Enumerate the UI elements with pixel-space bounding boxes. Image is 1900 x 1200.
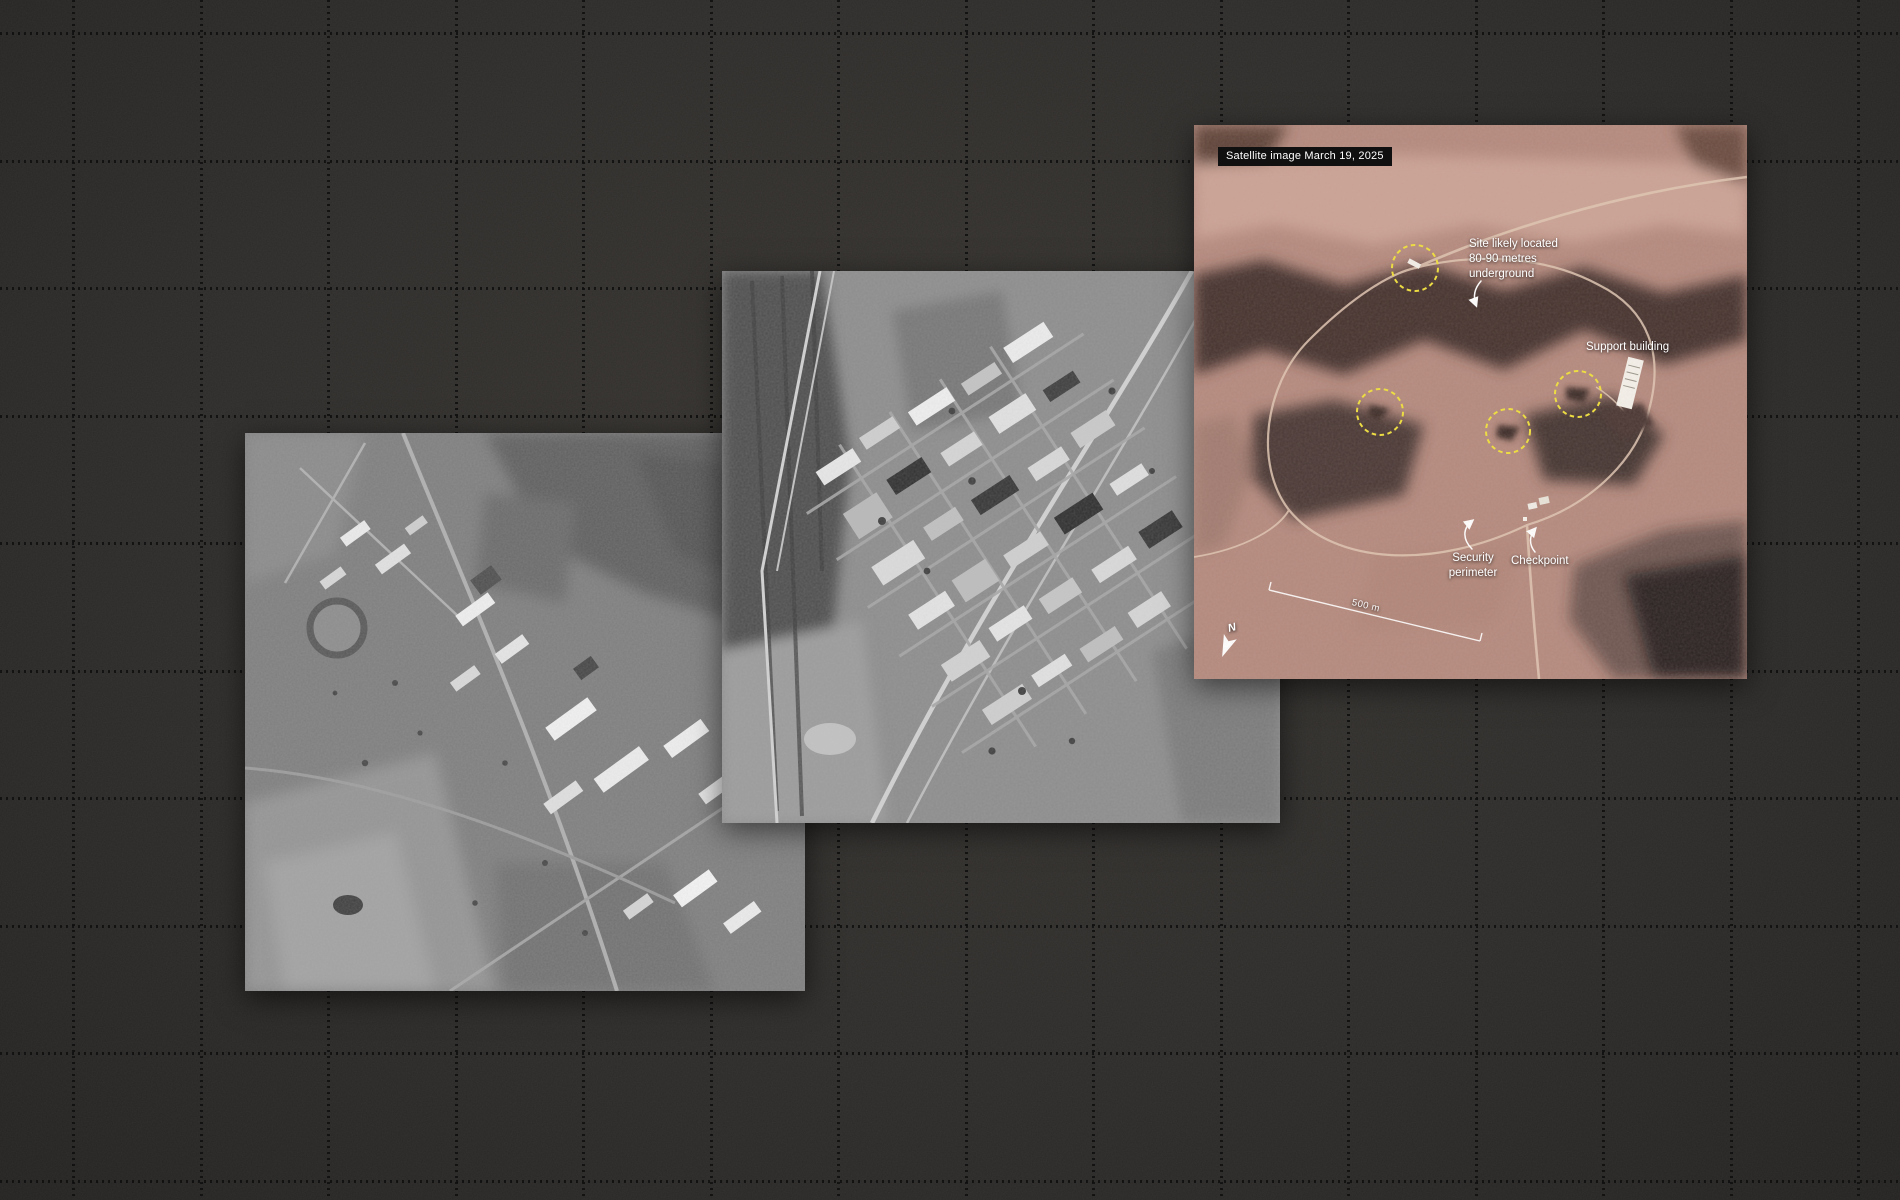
collage-canvas: Satellite image March 19, 2025 Site like… [0, 0, 1900, 1200]
grid-line-vertical [1857, 0, 1860, 1200]
satellite-photo-annotated: Satellite image March 19, 2025 Site like… [1194, 125, 1747, 679]
grid-line-vertical [200, 0, 203, 1200]
satellite-date-badge: Satellite image March 19, 2025 [1218, 147, 1392, 166]
satellite-photo-left-image [245, 433, 805, 991]
grid-line-horizontal [0, 32, 1900, 35]
satellite-photo-annotated-image [1194, 125, 1747, 679]
checkpoint-label: Checkpoint [1511, 555, 1569, 567]
satellite-photo-left [245, 433, 805, 991]
underground-site-label: Site likely located 80-90 metres undergr… [1469, 237, 1571, 283]
grid-line-vertical [72, 0, 75, 1200]
security-perimeter-label: Security perimeter [1440, 551, 1506, 581]
grid-line-horizontal [0, 1180, 1900, 1183]
grid-line-horizontal [0, 1052, 1900, 1055]
support-building-label: Support building [1586, 341, 1669, 353]
